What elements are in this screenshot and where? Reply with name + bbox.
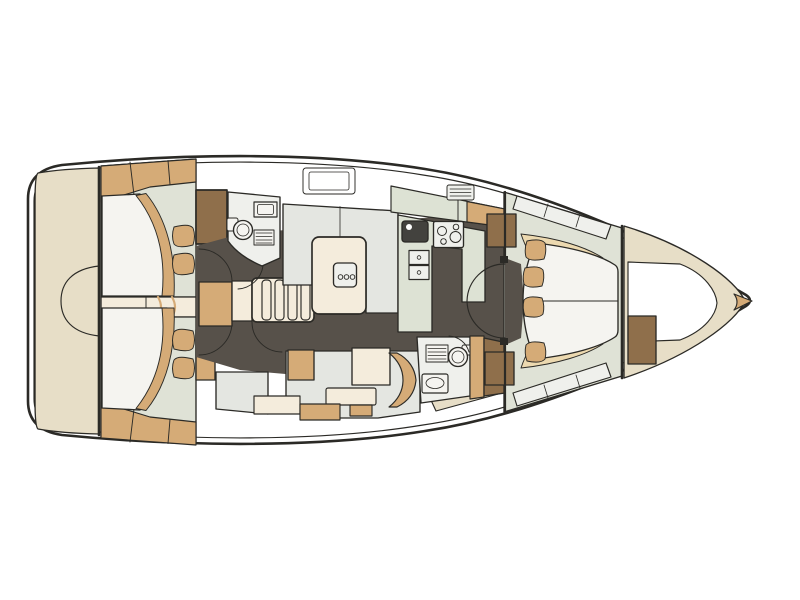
bow-step-locker [628,316,656,364]
pillow [525,342,546,362]
door-leaf [500,256,508,263]
fwd-head-tan-column [470,336,484,399]
fridge-top [409,251,429,265]
stern-platform [35,168,99,434]
floorplan-svg [0,0,800,600]
shower-grate [426,345,448,362]
fridge-bottom [409,266,429,280]
pillow [173,225,195,247]
settee-cream-panel [352,348,390,385]
hull-shelf-cream [254,396,300,414]
cabin-vestibule-dark [505,258,524,345]
wardrobe-brown [196,190,227,244]
pillow [523,297,544,317]
hull-shelf-tan [300,404,340,420]
stair-landing [232,281,252,321]
pillow [173,253,195,275]
settee-cushion [326,388,376,405]
wardrobe-brown [485,352,514,385]
bow-section [622,226,752,378]
settee-tan-step [350,405,372,416]
sink-glare [406,224,412,230]
door-leaf [500,338,508,345]
toilet-bowl [449,348,468,367]
toilet-bowl [234,221,253,240]
plan-root [28,156,752,445]
yacht-floorplan-canvas [0,0,800,600]
stove [434,222,464,248]
wardrobe-brown [487,214,516,247]
pillow [523,267,544,287]
pillow [525,240,546,260]
pillow [173,329,195,351]
mast-foot-dots [338,275,355,280]
pillow [173,357,195,379]
stair-base-cabinet [199,282,232,326]
settee-tan-locker [288,350,314,380]
galley-sink [402,221,428,242]
